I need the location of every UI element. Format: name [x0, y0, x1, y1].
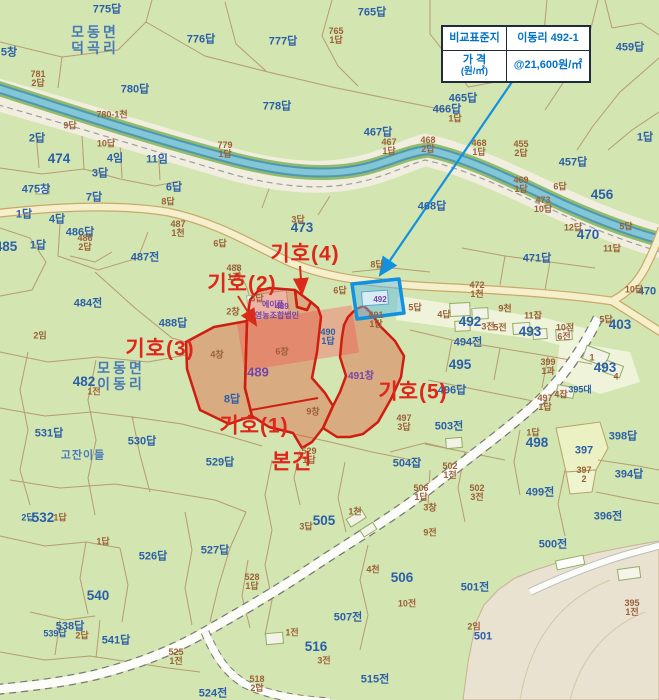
comparison-parcel-492 [352, 279, 404, 319]
info-box-row1-value: 이동리 492-1 [507, 27, 589, 51]
cadastral-map-stage: 모동면 덕곡리모동면 이동리고잔이들775답776답777답765답780답77… [0, 0, 659, 700]
map-canvas [0, 0, 659, 700]
info-box-row1-label: 비교표준지 [443, 27, 507, 51]
info-box: 비교표준지 이동리 492-1 가 격 (원/㎡) @21,600원/㎡ [441, 25, 591, 83]
info-box-row2-label: 가 격 (원/㎡) [443, 51, 507, 81]
info-box-row2-value: @21,600원/㎡ [507, 51, 589, 81]
